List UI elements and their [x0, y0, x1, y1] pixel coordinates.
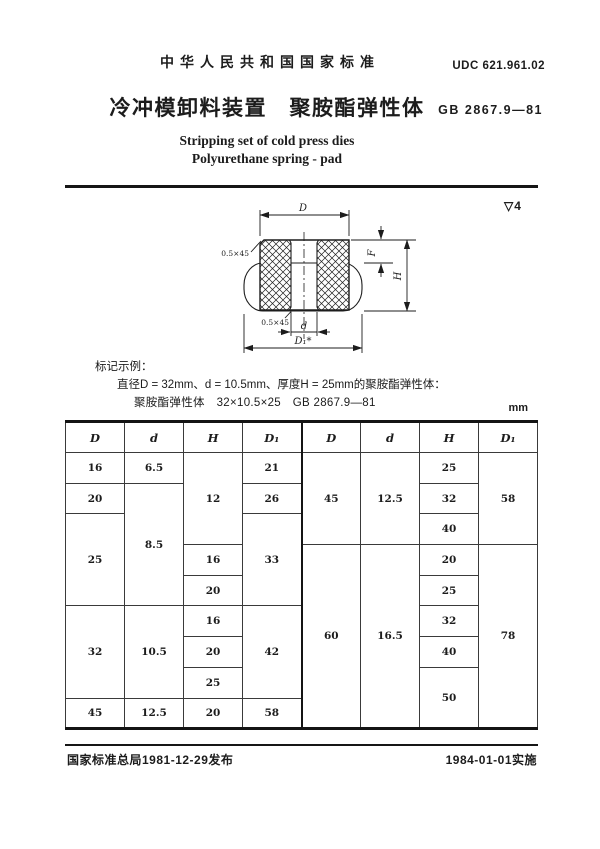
issued-date: 国家标准总局1981-12-29发布 [67, 751, 233, 768]
cell-left-H: 20 [184, 575, 243, 606]
cell-left-D: 45 [66, 698, 125, 729]
surface-roughness-symbol: ▽4 [504, 199, 522, 213]
col-header-H-right: H [420, 422, 479, 453]
col-header-D1-right: D₁ [479, 422, 538, 453]
cell-left-D: 20 [66, 483, 125, 514]
cross-section-drawing: D F H d D₁* 0.5×45 [185, 195, 425, 360]
chamfer-top-label: 0.5×45 [221, 249, 249, 258]
cell-right-H: 32 [420, 483, 479, 514]
standard-code: GB 2867.9—81 [438, 103, 543, 117]
cell-left-D1: 21 [243, 453, 302, 484]
dim-D1-label: D₁* [293, 336, 311, 347]
header-divider [65, 185, 538, 188]
table-row: 16 6.5 12 21 45 12.5 25 58 [66, 453, 538, 484]
table-unit-label: mm [508, 402, 528, 414]
english-title-line2: Polyurethane spring - pad [55, 151, 479, 167]
cell-left-D: 25 [66, 514, 125, 606]
left-hatch [260, 240, 291, 310]
cell-right-D1: 78 [479, 545, 538, 729]
cell-right-D: 45 [302, 453, 361, 545]
marking-example-heading: 标记示例： [95, 358, 153, 374]
standard-document-page: 中华人民共和国国家标准 UDC 621.961.02 冷冲模卸料装置 聚胺酯弹性… [0, 0, 600, 849]
dimension-table: D d H D₁ D d H D₁ 16 6.5 12 21 45 12.5 2… [65, 420, 538, 730]
dim-H-label: H [393, 271, 404, 281]
cell-left-H: 16 [184, 545, 243, 576]
dim-D-label: D [298, 203, 307, 214]
cell-right-H: 40 [420, 514, 479, 545]
cell-left-D: 16 [66, 453, 125, 484]
col-header-D1-left: D₁ [243, 422, 302, 453]
cell-right-D: 60 [302, 545, 361, 729]
cell-left-D1: 33 [243, 514, 302, 606]
cell-right-H: 25 [420, 453, 479, 484]
dim-F-label: F [367, 248, 378, 257]
dimension-F [351, 226, 416, 277]
cell-right-H: 40 [420, 637, 479, 668]
cell-right-D1: 58 [479, 453, 538, 545]
chamfer-callout-top: 0.5×45 [221, 241, 261, 258]
page-title: 冷冲模卸料装置 聚胺酯弹性体 [55, 92, 479, 122]
cell-right-H: 20 [420, 545, 479, 576]
cell-left-H: 25 [184, 667, 243, 698]
cell-left-H: 20 [184, 698, 243, 729]
cell-left-d: 8.5 [125, 483, 184, 606]
cell-right-H: 50 [420, 667, 479, 728]
footer-divider [65, 744, 538, 746]
marking-example-designation: 聚胺酯弹性体 32×10.5×25 GB 2867.9—81 [134, 394, 376, 410]
marking-example-description: 直径D = 32mm、d = 10.5mm、厚度H = 25mm的聚胺酯弹性体： [117, 376, 446, 392]
cell-left-H: 12 [184, 453, 243, 545]
cell-left-H: 16 [184, 606, 243, 637]
cell-left-D1: 58 [243, 698, 302, 729]
cell-left-d: 12.5 [125, 698, 184, 729]
cell-right-d: 16.5 [361, 545, 420, 729]
effective-date: 1984-01-01实施 [446, 751, 537, 768]
cell-left-D1: 26 [243, 483, 302, 514]
cell-left-H: 20 [184, 637, 243, 668]
col-header-d-right: d [361, 422, 420, 453]
right-hatch [317, 240, 349, 310]
col-header-D-right: D [302, 422, 361, 453]
cell-left-d: 10.5 [125, 606, 184, 698]
national-standard-heading: 中华人民共和国国家标准 [60, 52, 480, 72]
dim-d-label: d [301, 321, 307, 332]
col-header-H-left: H [184, 422, 243, 453]
col-header-d-left: d [125, 422, 184, 453]
cell-right-H: 32 [420, 606, 479, 637]
chamfer-callout-bottom: 0.5×45 [261, 311, 292, 328]
cell-left-D1: 42 [243, 606, 302, 698]
chamfer-bottom-label: 0.5×45 [261, 318, 289, 327]
cell-right-d: 12.5 [361, 453, 420, 545]
col-header-D-left: D [66, 422, 125, 453]
cell-right-H: 25 [420, 575, 479, 606]
english-title-line1: Stripping set of cold press dies [55, 133, 479, 149]
table-header-row: D d H D₁ D d H D₁ [66, 422, 538, 453]
cell-left-D: 32 [66, 606, 125, 698]
cell-left-d: 6.5 [125, 453, 184, 484]
udc-number: UDC 621.961.02 [452, 60, 545, 72]
